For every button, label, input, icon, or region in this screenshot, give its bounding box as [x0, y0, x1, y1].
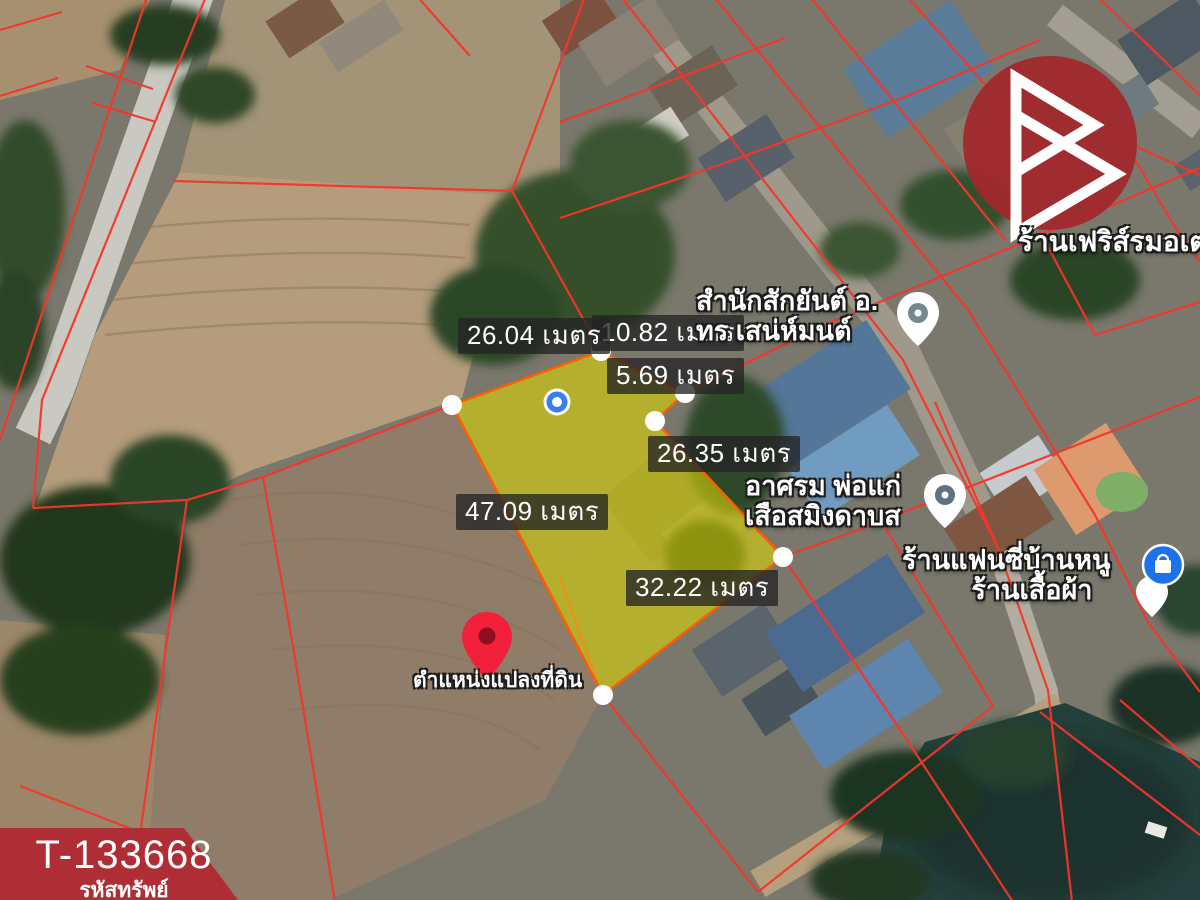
property-code-caption: รหัสทรัพย์ [24, 874, 224, 900]
measurement-label-right: 26.35 เมตร [648, 436, 800, 472]
vertex-dot [442, 395, 462, 415]
land-listing-map-image: 10.82 เมตร 26.04 เมตร 5.69 เมตร 26.35 เม… [0, 0, 1200, 900]
poi-label-tattoo-line1: สำนักสักยันต์ อ. [696, 286, 878, 316]
poi-label-ashram: อาศรม พ่อแก่ เสือสมิงดาบส [745, 471, 901, 531]
poi-label-tattoo-line2: ทร เสน่ห์มนต์ [696, 316, 878, 346]
brand-logo-circle [963, 56, 1137, 230]
gps-location-icon [545, 390, 569, 414]
vertex-dot [773, 547, 793, 567]
vertex-dot [593, 685, 613, 705]
satellite-map-canvas [0, 0, 1200, 900]
poi-label-ashram-line2: เสือสมิงดาบส [745, 501, 901, 531]
property-code: T-133668 [24, 833, 224, 878]
measurement-label-top: 26.04 เมตร [458, 318, 610, 354]
poi-label-ferris-shop: ร้านเฟริส์รมอเต [1018, 226, 1200, 257]
land-pin-caption: ตำแหน่งแปลงที่ดิน [413, 664, 582, 697]
poi-label-fancy-line2: ร้านเสื้อผ้า [902, 575, 1110, 605]
poi-label-fancy-line1: ร้านแฟนซี่บ้านหนู [902, 545, 1110, 575]
poi-label-tattoo: สำนักสักยันต์ อ. ทร เสน่ห์มนต์ [696, 286, 878, 346]
poi-label-ashram-line1: อาศรม พ่อแก่ [745, 471, 901, 501]
vertex-dot [645, 411, 665, 431]
measurement-label-left: 47.09 เมตร [456, 494, 608, 530]
measurement-label-notch: 5.69 เมตร [607, 358, 744, 394]
poi-label-fancy-shop: ร้านแฟนซี่บ้านหนู ร้านเสื้อผ้า [902, 545, 1110, 605]
measurement-label-bottom: 32.22 เมตร [626, 570, 778, 606]
